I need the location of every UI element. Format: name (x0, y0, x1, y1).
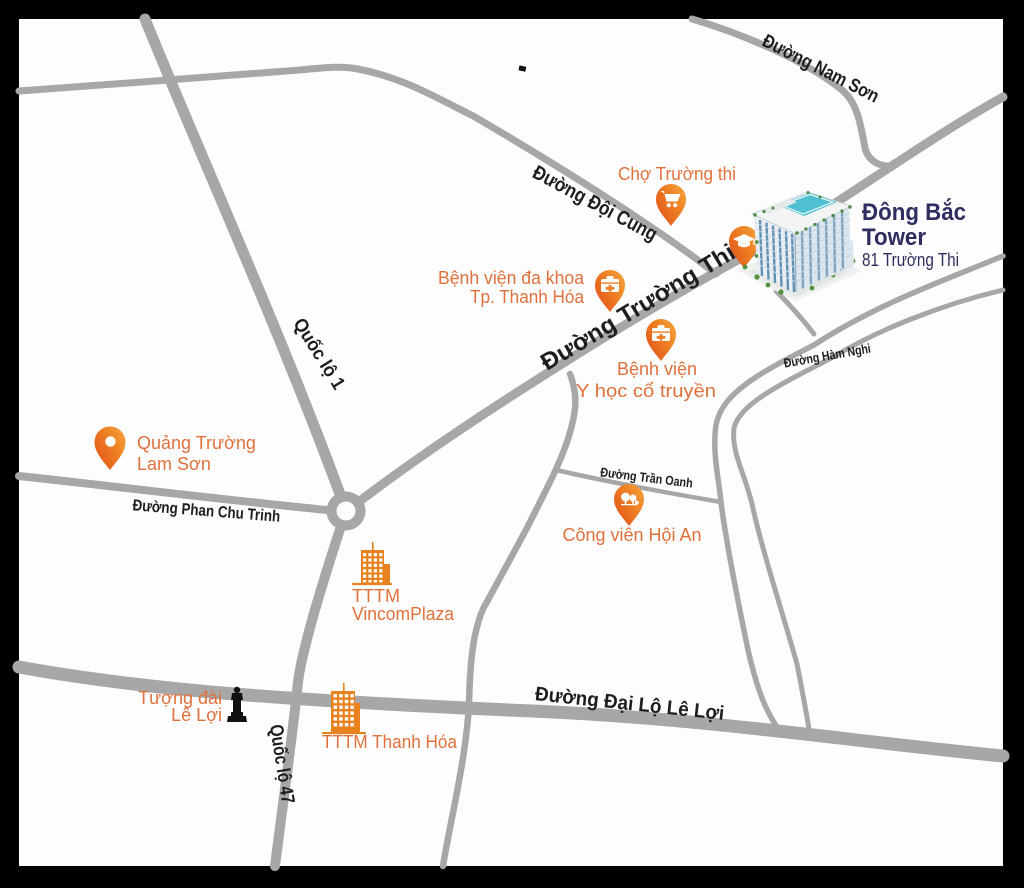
svg-text:Quảng Trường: Quảng Trường (137, 433, 256, 453)
svg-text:TTTM: TTTM (352, 586, 400, 606)
svg-text:Bệnh viện đa khoa: Bệnh viện đa khoa (438, 268, 585, 288)
svg-text:Y học cổ truyền: Y học cổ truyền (576, 381, 716, 401)
svg-text:Công viên Hội An: Công viên Hội An (562, 525, 701, 545)
svg-text:VincomPlaza: VincomPlaza (352, 604, 455, 624)
svg-text:Chợ Trường thi: Chợ Trường thi (618, 164, 736, 184)
svg-text:TTTM Thanh Hóa: TTTM Thanh Hóa (322, 732, 458, 752)
svg-text:Tower: Tower (862, 224, 926, 251)
svg-text:81 Trường Thi: 81 Trường Thi (862, 250, 959, 270)
svg-text:Tp. Thanh Hóa: Tp. Thanh Hóa (470, 287, 585, 307)
svg-text:Lam Sơn: Lam Sơn (137, 454, 211, 474)
svg-text:Lê Lợi: Lê Lợi (171, 705, 222, 725)
svg-text:Đông Bắc: Đông Bắc (862, 198, 966, 226)
svg-text:Bệnh viện: Bệnh viện (617, 359, 697, 379)
